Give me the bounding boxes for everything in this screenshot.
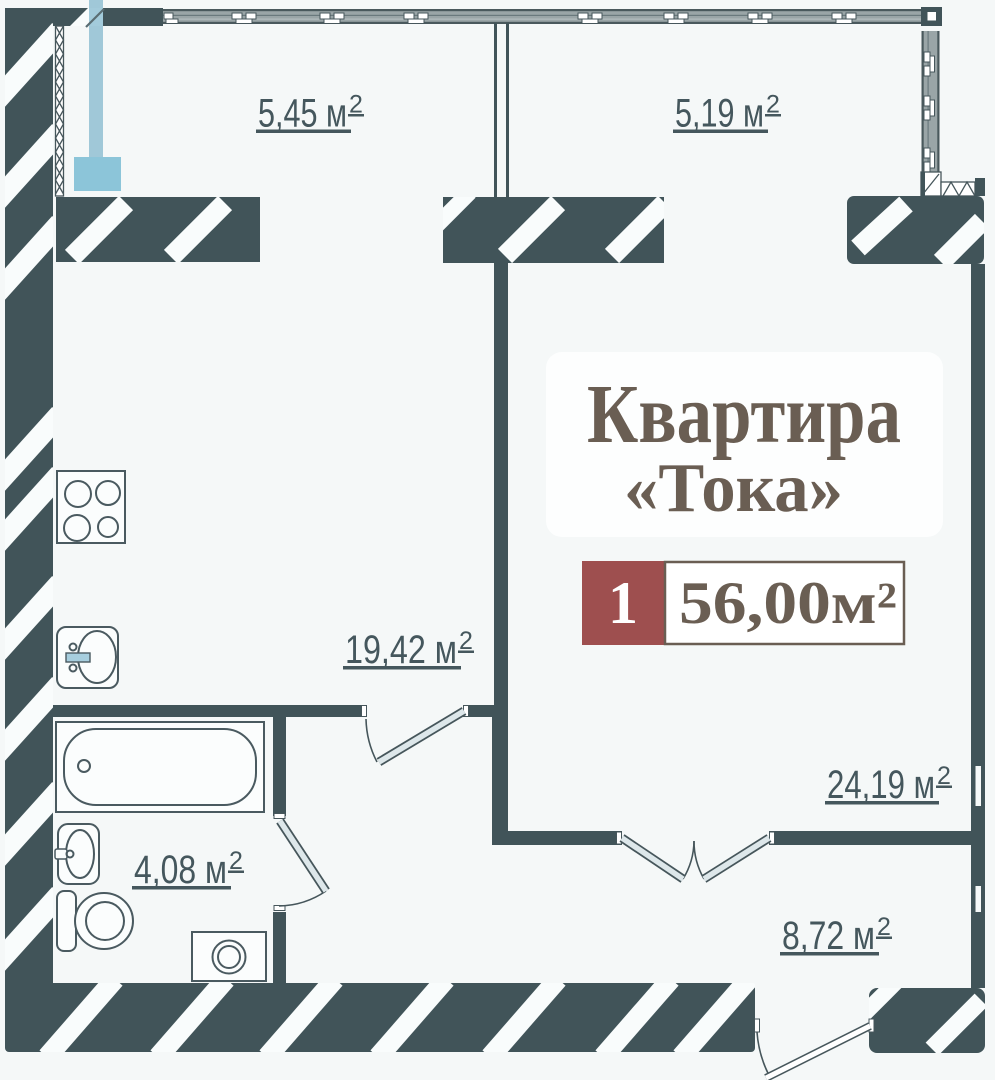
svg-text:56,00м²: 56,00м² — [679, 570, 897, 636]
svg-text:4,08 м: 4,08 м — [134, 848, 227, 892]
svg-text:19,42 м: 19,42 м — [345, 628, 457, 672]
svg-text:5,19 м: 5,19 м — [675, 92, 764, 136]
svg-text:«Тока»: «Тока» — [624, 450, 843, 527]
svg-text:24,19 м: 24,19 м — [827, 763, 935, 807]
svg-text:5,45 м: 5,45 м — [258, 92, 347, 136]
svg-text:Квартира: Квартира — [587, 368, 901, 461]
svg-text:8,72 м: 8,72 м — [782, 914, 875, 958]
svg-text:1: 1 — [608, 570, 638, 636]
